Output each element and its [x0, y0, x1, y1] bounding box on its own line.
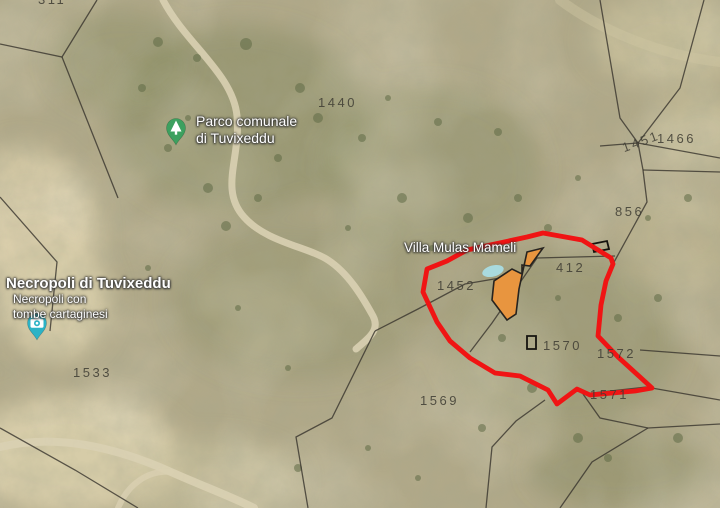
terrain-texture-fine	[0, 0, 720, 508]
camera-lens-icon	[36, 322, 39, 325]
tree-trunk-icon	[175, 132, 177, 135]
map-imagery	[0, 0, 720, 508]
satellite-map-canvas[interactable]: Parco comunaledi TuvixedduNecropoli di T…	[0, 0, 720, 508]
